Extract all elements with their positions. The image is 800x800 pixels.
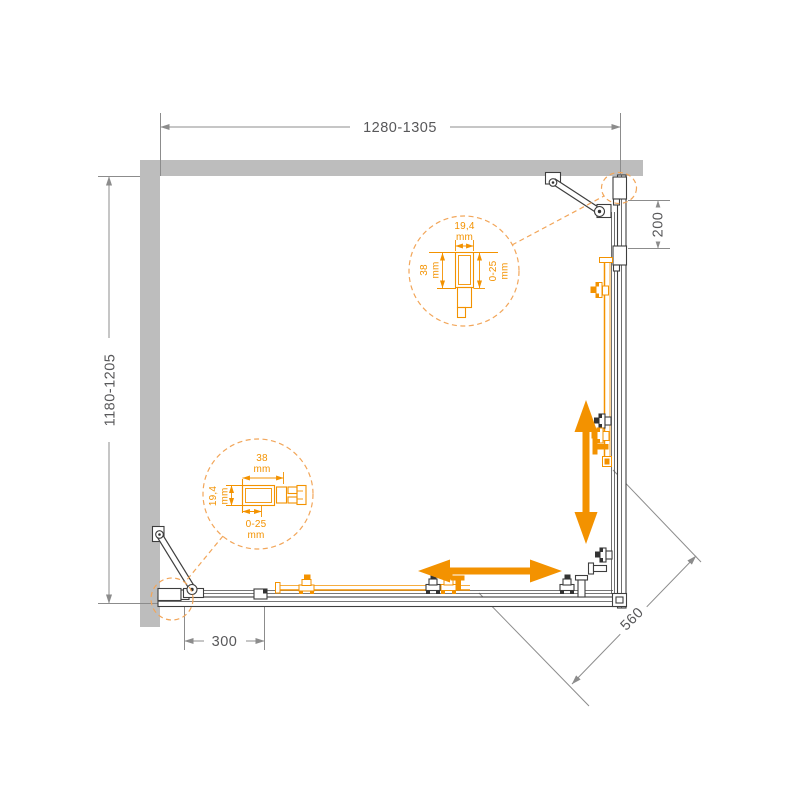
detail-dim-width: 38 mm bbox=[243, 453, 284, 484]
detail-dim-adjust: 0-25 mm bbox=[474, 253, 511, 289]
right-rail-bracket-notch bbox=[614, 199, 620, 205]
right-rail-mid-bracket bbox=[613, 246, 627, 265]
detail-width-unit: mm bbox=[253, 464, 270, 475]
detail-profile-foot bbox=[458, 308, 466, 318]
right-rail-roller-bottom bbox=[595, 548, 612, 562]
corner-post-inner bbox=[616, 597, 623, 603]
width-dimension-label: 1280-1305 bbox=[363, 120, 437, 136]
left-wall bbox=[140, 160, 160, 627]
detail-width-unit: mm bbox=[456, 232, 473, 243]
dimension-extension-line bbox=[479, 593, 589, 706]
detail-profile-tab bbox=[288, 497, 297, 503]
offset-200-label: 200 bbox=[651, 212, 667, 238]
detail-width-value: 38 bbox=[256, 453, 268, 464]
top-detail-leader-line bbox=[512, 196, 604, 245]
detail-adjust-value: 0-25 bbox=[488, 260, 499, 281]
detail-profile-inner bbox=[246, 489, 272, 503]
right-door-top-cap bbox=[600, 258, 613, 263]
shower-enclosure-plan-drawing: 1280-1305 1180-1205 200 300 bbox=[0, 0, 800, 800]
top-detail-drawing: 19,4 mm 38 mm 0-25 mm bbox=[419, 221, 511, 318]
support-hinge-pin bbox=[158, 533, 161, 536]
detail-depth-unit: mm bbox=[431, 261, 442, 278]
bottom-rail-clip bbox=[263, 590, 267, 594]
support-hinge-pin bbox=[598, 210, 601, 213]
detail-profile-step bbox=[458, 288, 472, 308]
bottom-detail-drawing: 38 mm 19,4 mm 0-25 mm bbox=[208, 453, 306, 541]
right-sliding-door bbox=[591, 258, 613, 467]
right-rail-guide-post bbox=[589, 563, 607, 574]
right-door-roller-top bbox=[591, 283, 609, 298]
right-door-roller-black bbox=[594, 414, 611, 428]
offset-200-dimension: 200 bbox=[628, 201, 670, 249]
bottom-rail-roller-right bbox=[560, 575, 574, 595]
detail-depth-value: 19,4 bbox=[208, 486, 219, 507]
depth-dimension-label: 1180-1205 bbox=[103, 354, 119, 427]
bottom-door-end-cap bbox=[276, 583, 281, 594]
bottom-detail-leader-line bbox=[186, 536, 223, 581]
detail-profile-inner bbox=[459, 256, 471, 285]
detail-profile-tab bbox=[288, 487, 297, 494]
detail-adjust-unit: mm bbox=[500, 262, 511, 279]
support-rod-inner bbox=[553, 181, 599, 211]
entry-width-dimension: 560 bbox=[479, 470, 701, 706]
offset-300-label: 300 bbox=[212, 634, 238, 650]
detail-dim-width: 19,4 mm bbox=[454, 221, 475, 251]
bottom-frame-rail bbox=[158, 589, 627, 607]
detail-dim-depth: 38 mm bbox=[419, 253, 456, 289]
support-hinge-pin bbox=[552, 181, 555, 184]
bottom-door-roller-left bbox=[299, 575, 314, 595]
horizontal-slide-arrow-icon bbox=[418, 560, 562, 583]
detail-adjust-unit: mm bbox=[247, 530, 264, 541]
support-rod-inner bbox=[160, 536, 192, 588]
detail-dim-adjust: 0-25 mm bbox=[243, 506, 267, 541]
right-frame-rail bbox=[613, 175, 627, 608]
detail-dim-depth: 19,4 mm bbox=[208, 486, 243, 507]
detail-width-value: 19,4 bbox=[454, 221, 475, 232]
fixed-glass-panels bbox=[181, 212, 615, 594]
right-door-end-cap bbox=[603, 457, 612, 467]
right-rail-bracket-notch bbox=[614, 265, 620, 271]
detail-adjust-value: 0-25 bbox=[246, 519, 267, 530]
shower-enclosure-plan-page: 1280-1305 1180-1205 200 300 bbox=[0, 0, 800, 800]
top-wall bbox=[140, 160, 643, 176]
bottom-rail-left-block bbox=[158, 589, 181, 601]
wall-support-bar-top-right bbox=[546, 173, 612, 218]
detail-profile-step bbox=[277, 487, 287, 503]
right-rail-top-bracket bbox=[613, 177, 627, 199]
detail-depth-value: 38 bbox=[419, 264, 430, 276]
offset-300-dimension: 300 bbox=[185, 602, 265, 650]
detail-depth-unit: mm bbox=[220, 487, 231, 504]
wall-support-bar-bottom-left bbox=[153, 527, 204, 598]
detail-profile-end bbox=[297, 486, 306, 505]
